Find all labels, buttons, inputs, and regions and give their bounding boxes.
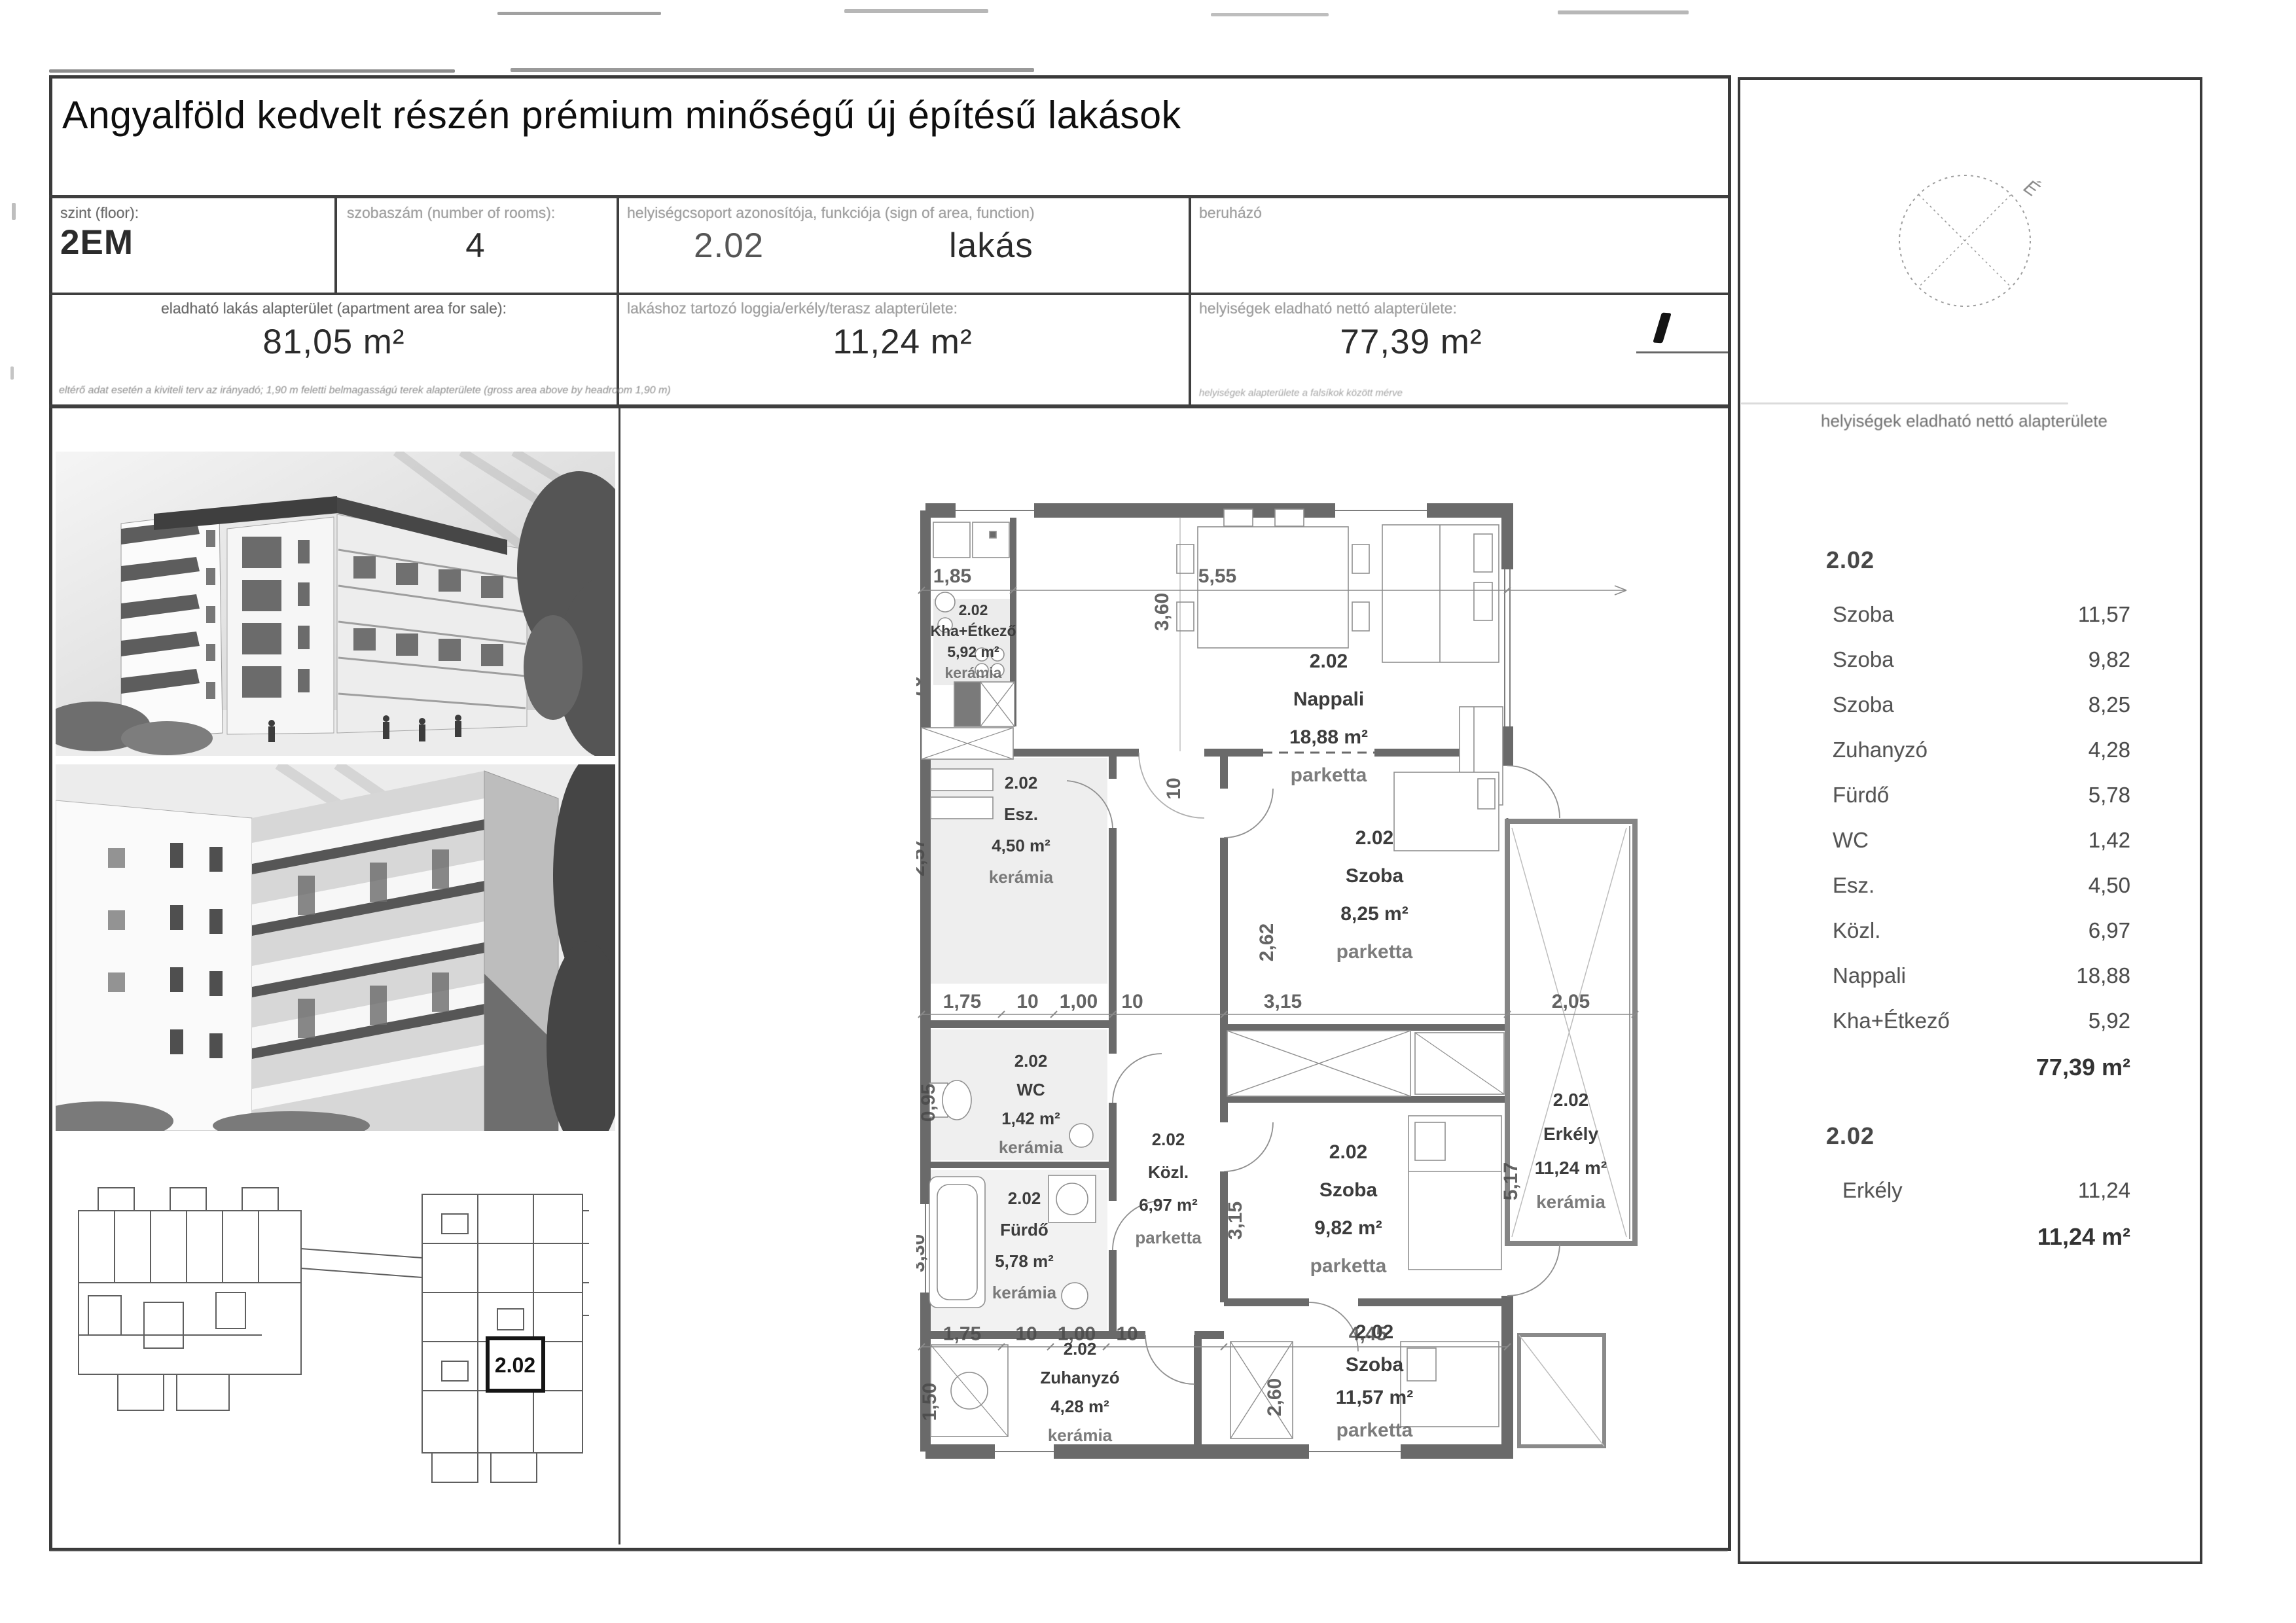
svg-text:11,57 m²: 11,57 m²	[1336, 1387, 1413, 1408]
dimension-text: 10	[1016, 991, 1038, 1012]
dimension-text: 3,15	[1225, 1202, 1246, 1240]
svg-text:kerámia: kerámia	[1536, 1192, 1605, 1212]
dimension-text: 10	[1121, 991, 1143, 1012]
svg-text:2.02: 2.02	[1005, 773, 1038, 793]
schedule-row-value: 5,78	[2026, 783, 2130, 808]
schedule-row-label: Fürdő	[1833, 783, 1889, 808]
north-mark: É	[2020, 176, 2043, 202]
room-label-nappali: 2.02Nappali18,88 m²parketta	[1289, 651, 1368, 786]
table-rule	[1189, 195, 1191, 408]
dimension-text: 1,75	[943, 1323, 981, 1345]
svg-text:parketta: parketta	[1336, 941, 1413, 963]
svg-text:2.02: 2.02	[1152, 1130, 1185, 1149]
table-rule	[617, 195, 619, 408]
schedule-group-id: 2.02	[1826, 1122, 1874, 1150]
scan-noise	[12, 203, 16, 220]
schedule-row-value: 4,50	[2026, 873, 2130, 898]
svg-text:2.02: 2.02	[959, 601, 988, 618]
building-render-photo-2	[56, 764, 615, 1131]
svg-text:parketta: parketta	[1291, 764, 1367, 786]
table-rule	[49, 293, 1728, 295]
scan-noise	[511, 68, 1034, 72]
table-rule	[49, 195, 1728, 198]
dimension-text: 5,55	[1198, 565, 1236, 587]
dimension-text: 5,17	[1500, 1162, 1522, 1200]
schedule-group-total: 11,24 m²	[1934, 1223, 2130, 1251]
rooms-label: szobaszám (number of rooms):	[347, 204, 555, 222]
schedule-row-value: 11,24	[2026, 1178, 2130, 1203]
developer-label: beruházó	[1199, 204, 1262, 222]
svg-text:WC: WC	[1016, 1080, 1045, 1099]
svg-text:kerámia: kerámia	[989, 867, 1054, 887]
svg-text:4,28 m²: 4,28 m²	[1050, 1397, 1109, 1416]
table-rule	[49, 404, 1728, 408]
room-label-zuhanyzo: 2.02Zuhanyzó4,28 m²kerámia	[1040, 1339, 1119, 1445]
svg-text:Közl.: Közl.	[1148, 1162, 1189, 1182]
dimension-text: 3,60	[1151, 593, 1173, 631]
svg-text:Esz.: Esz.	[1004, 804, 1038, 824]
schedule-row-value: 11,57	[2026, 602, 2130, 627]
schedule-row-label: Szoba	[1833, 602, 1894, 627]
svg-text:5,78 m²: 5,78 m²	[995, 1251, 1054, 1271]
scanned-datasheet-page: Angyalföld kedvelt részén prémium minősé…	[0, 0, 2296, 1623]
dimension-text: 1,50	[919, 1383, 941, 1421]
dimension-text: 1,75	[943, 991, 981, 1012]
dimension-text: 10	[1116, 1323, 1138, 1345]
schedule-row-label: Zuhanyzó	[1833, 738, 1928, 762]
dimension-text: 2,05	[1552, 991, 1590, 1012]
floor-label: szint (floor):	[60, 204, 139, 222]
svg-text:Nappali: Nappali	[1293, 688, 1364, 710]
scan-noise	[10, 366, 14, 380]
scan-noise	[1741, 402, 2068, 404]
table-rule	[1636, 351, 1728, 353]
net-area-footnote: helyiségek alapterülete a falsíkok közöt…	[1199, 387, 1403, 399]
net-area-value: 77,39 m²	[1189, 322, 1634, 362]
room-label-szoba-982: 2.02Szoba9,82 m²parketta	[1310, 1141, 1387, 1277]
apartment-area-label: eladható lakás alapterület (apartment ar…	[52, 300, 615, 317]
floor-value: 2EM	[60, 223, 134, 262]
svg-text:2.02: 2.02	[1008, 1188, 1041, 1208]
schedule-row-value: 18,88	[2026, 963, 2130, 988]
svg-text:2.02: 2.02	[1355, 827, 1393, 849]
dimension-text: 3,15	[1264, 991, 1302, 1012]
dimension-text: 2,62	[1256, 923, 1278, 961]
schedule-group-id: 2.02	[1826, 546, 1874, 574]
svg-text:kerámia: kerámia	[999, 1137, 1064, 1157]
scan-noise	[49, 1550, 1728, 1552]
dimension-text: 70	[916, 676, 925, 698]
svg-text:kerámia: kerámia	[992, 1283, 1057, 1302]
schedule-row-label: Kha+Étkező	[1833, 1008, 1950, 1033]
svg-text:2.02: 2.02	[1329, 1141, 1367, 1163]
svg-text:Szoba: Szoba	[1319, 1179, 1378, 1201]
scan-noise	[497, 12, 661, 15]
svg-text:6,97 m²: 6,97 m²	[1139, 1195, 1198, 1215]
schedule-row-value: 6,97	[2026, 918, 2130, 943]
rooms-value: 4	[334, 226, 617, 266]
schedule-row-value: 1,42	[2026, 828, 2130, 853]
svg-text:parketta: parketta	[1135, 1228, 1202, 1247]
svg-text:Kha+Étkező: Kha+Étkező	[930, 622, 1016, 639]
left-column-divider	[619, 406, 620, 1544]
room-label-kozl: 2.02Közl.6,97 m²parketta	[1135, 1130, 1202, 1247]
svg-text:Szoba: Szoba	[1346, 1354, 1404, 1376]
svg-text:18,88 m²: 18,88 m²	[1289, 726, 1368, 748]
dimension-text: 1,85	[933, 565, 971, 587]
svg-text:parketta: parketta	[1310, 1255, 1387, 1277]
schedule-row-label: Nappali	[1833, 963, 1906, 988]
site-plan-unit-label: 2.02	[495, 1353, 535, 1377]
svg-text:Fürdő: Fürdő	[1000, 1220, 1049, 1240]
site-key-plan: 2.02	[65, 1171, 589, 1525]
balcony-area-label: lakáshoz tartozó loggia/erkély/terasz al…	[627, 300, 958, 317]
schedule-row-label: Esz.	[1833, 873, 1874, 898]
building-render-photo-1	[56, 452, 615, 756]
svg-text:2.02: 2.02	[1553, 1090, 1589, 1110]
svg-text:4,50 m²: 4,50 m²	[992, 836, 1050, 855]
svg-text:2.02: 2.02	[1014, 1051, 1048, 1071]
apartment-floor-plan: 2.02Kha+Étkező5,92 m²kerámia2.02Nappali1…	[916, 491, 1649, 1486]
svg-text:kerámia: kerámia	[1048, 1425, 1113, 1445]
page-title: Angyalföld kedvelt részén prémium minősé…	[62, 93, 1181, 137]
unit-label: helyiségcsoport azonosítója, funkciója (…	[627, 204, 1035, 222]
scan-noise	[1211, 13, 1329, 16]
unit-function-value: lakás	[949, 226, 1033, 266]
svg-text:5,92 m²: 5,92 m²	[947, 643, 999, 660]
north-compass-icon: É	[1892, 164, 2049, 321]
svg-text:11,24 m²: 11,24 m²	[1535, 1158, 1607, 1178]
dimension-text: 10	[1015, 1323, 1037, 1345]
schedule-row-value: 4,28	[2026, 738, 2130, 762]
schedule-group-total: 77,39 m²	[1934, 1054, 2130, 1081]
scan-noise	[49, 69, 455, 73]
schedule-row-label: Erkély	[1842, 1178, 1903, 1203]
dimension-text: 2,60	[1264, 1378, 1285, 1416]
svg-text:Zuhanyzó: Zuhanyzó	[1040, 1368, 1119, 1387]
apartment-area-footnote: eltérő adat esetén a kiviteli terv az ir…	[59, 385, 671, 397]
svg-text:kerámia: kerámia	[945, 664, 1002, 681]
schedule-row-value: 5,92	[2026, 1008, 2130, 1033]
dimension-text: 1,00	[1060, 991, 1098, 1012]
svg-text:Erkély: Erkély	[1543, 1124, 1598, 1144]
svg-text:Szoba: Szoba	[1346, 865, 1404, 887]
dimension-text: 2,57	[916, 838, 929, 876]
svg-text:1,42 m²: 1,42 m²	[1001, 1109, 1060, 1128]
schedule-row-label: Szoba	[1833, 647, 1894, 672]
scan-noise	[844, 9, 988, 13]
svg-text:8,25 m²: 8,25 m²	[1340, 903, 1408, 925]
unit-id-value: 2.02	[694, 226, 764, 266]
room-label-erkely: 2.02Erkély11,24 m²kerámia	[1535, 1090, 1607, 1212]
schedule-header: helyiségek eladható nettó alapterülete	[1821, 411, 2108, 431]
dimension-text: 0,95	[918, 1084, 939, 1122]
schedule-row-value: 8,25	[2026, 692, 2130, 717]
svg-text:parketta: parketta	[1336, 1419, 1413, 1441]
dimension-text: 1,00	[1058, 1323, 1096, 1345]
svg-text:2.02: 2.02	[1310, 651, 1348, 672]
svg-text:9,82 m²: 9,82 m²	[1314, 1217, 1382, 1239]
dimension-text: 4,45	[1349, 1323, 1387, 1345]
schedule-row-label: Szoba	[1833, 692, 1894, 717]
schedule-row-value: 9,82	[2026, 647, 2130, 672]
schedule-row-label: Közl.	[1833, 918, 1880, 943]
net-area-label: helyiségek eladható nettó alapterülete:	[1199, 300, 1457, 317]
dimension-text: 10	[1163, 777, 1185, 799]
scan-noise	[1558, 10, 1689, 14]
balcony-area-value: 11,24 m²	[617, 322, 1189, 362]
apartment-area-value: 81,05 m²	[52, 322, 615, 362]
schedule-row-label: WC	[1833, 828, 1869, 853]
dimension-text: 3,30	[916, 1234, 929, 1272]
